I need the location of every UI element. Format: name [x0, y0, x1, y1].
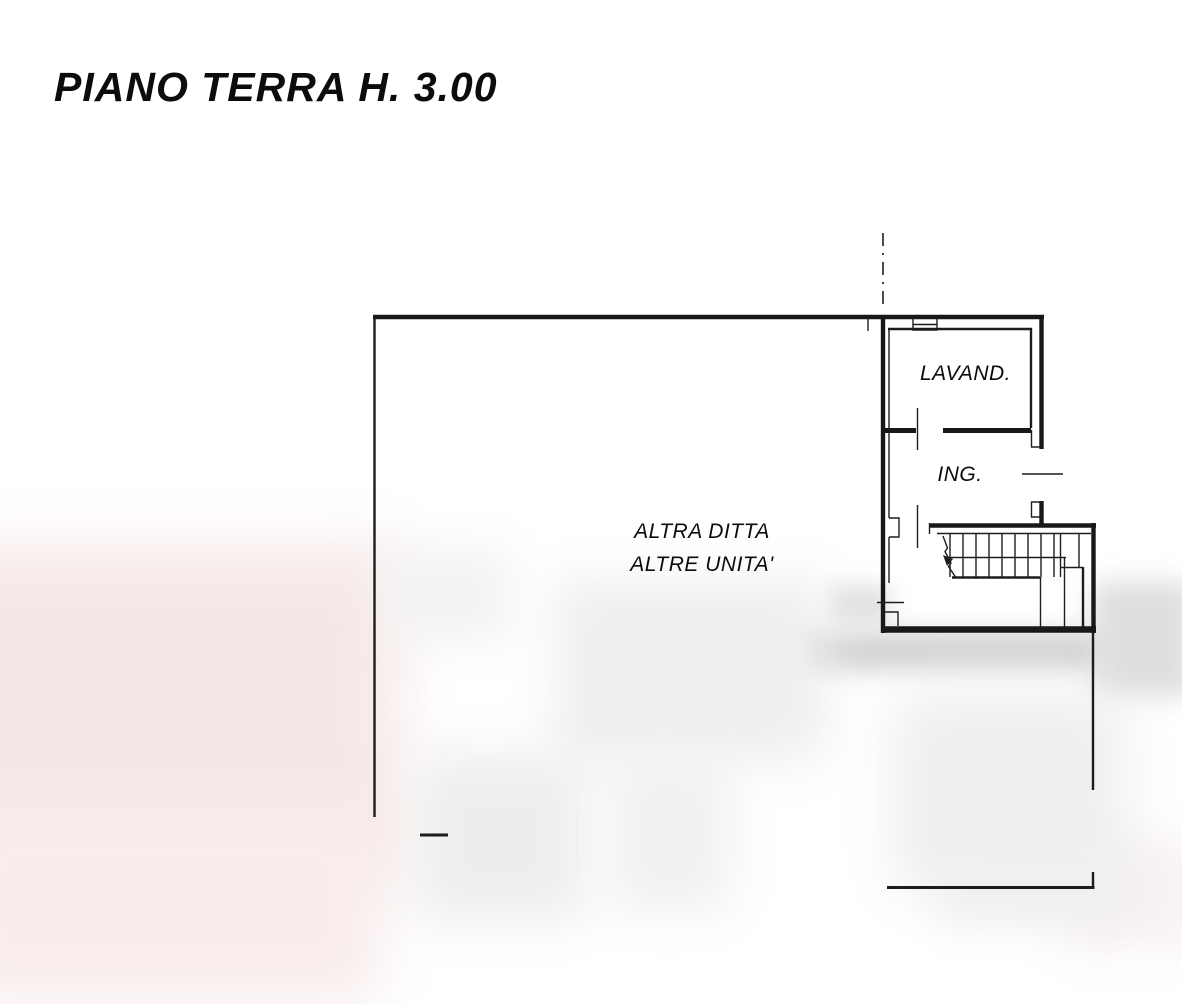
staircase [929, 523, 1096, 633]
scanned-floorplan-page: { "title": "PIANO TERRA H. 3.00", "rooms… [0, 0, 1182, 1004]
plan-title: PIANO TERRA H. 3.00 [54, 64, 498, 111]
room-label-other-unit: ALTRA DITTA ALTRE UNITA' [587, 515, 817, 581]
room-label-entrance: ING. [900, 463, 1020, 487]
room-label-other-unit-line1: ALTRA DITTA [587, 515, 817, 548]
entrance-room-walls [885, 430, 1041, 626]
room-label-other-unit-line2: ALTRE UNITA' [587, 548, 817, 581]
floor-plan-drawing [0, 0, 1182, 1004]
door-swing-markers [877, 408, 1063, 603]
room-label-laundry: LAVAND. [903, 362, 1028, 386]
laundry-room-walls [885, 319, 1031, 583]
outer-walls [373, 315, 1096, 888]
